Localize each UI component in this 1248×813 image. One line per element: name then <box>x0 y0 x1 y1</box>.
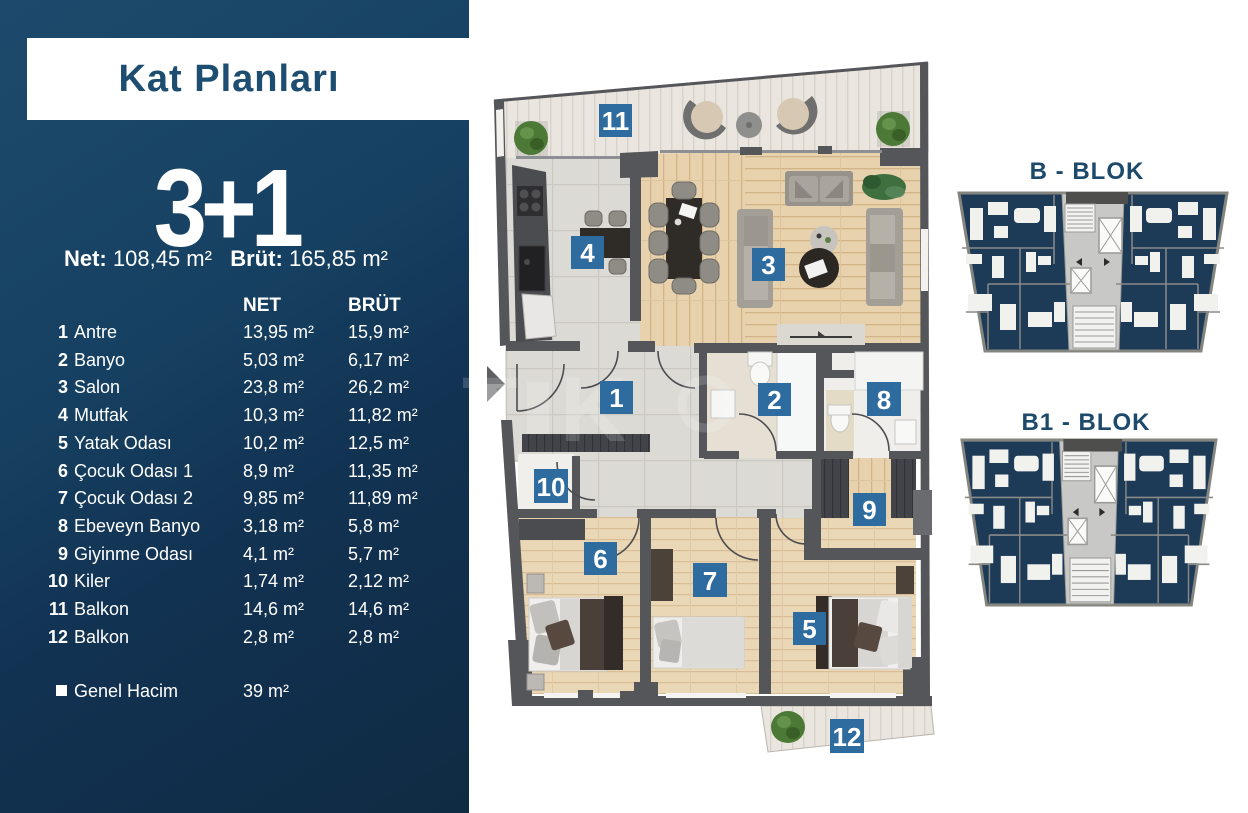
svg-text:9: 9 <box>862 495 876 525</box>
svg-text:1: 1 <box>609 383 623 413</box>
svg-text:2: 2 <box>767 385 781 415</box>
svg-text:B1 - BLOK: B1 - BLOK <box>1022 409 1151 436</box>
svg-text:4: 4 <box>580 238 595 268</box>
svg-text:3: 3 <box>761 250 775 280</box>
svg-text:6: 6 <box>593 544 607 574</box>
svg-text:12: 12 <box>833 722 862 752</box>
svg-text:8: 8 <box>877 385 891 415</box>
svg-text:T: T <box>462 359 524 461</box>
svg-text:5: 5 <box>802 614 816 644</box>
svg-text:7: 7 <box>703 566 717 596</box>
svg-text:B - BLOK: B - BLOK <box>1030 158 1145 185</box>
svg-text:11: 11 <box>602 106 630 136</box>
svg-text:10: 10 <box>537 472 566 502</box>
